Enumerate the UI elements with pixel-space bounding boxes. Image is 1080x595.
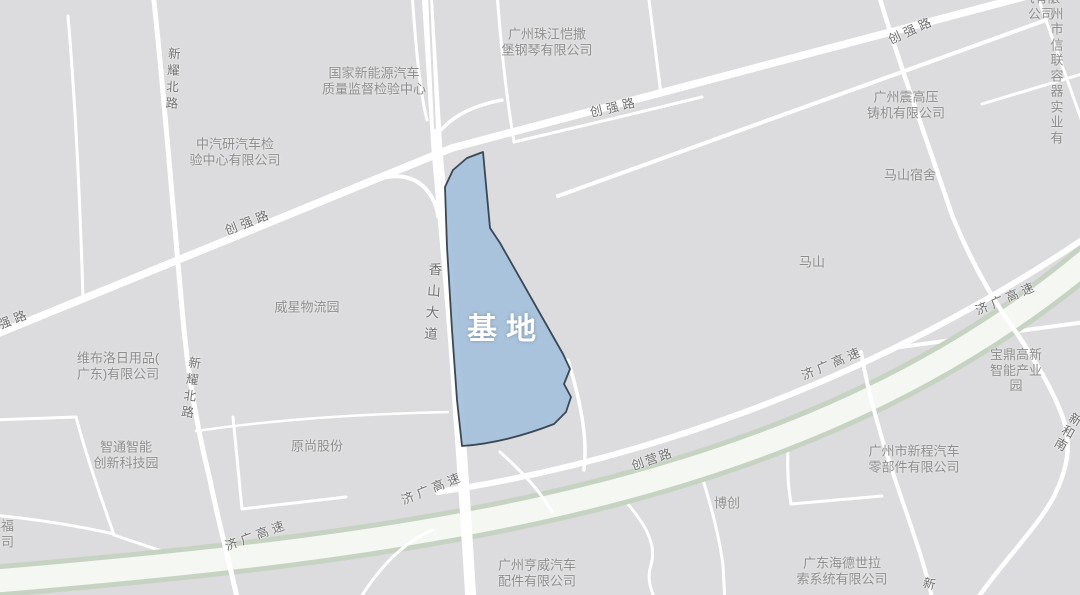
road-minor <box>558 20 1046 196</box>
road-minor <box>568 360 585 470</box>
map-canvas: 国家新能源汽车 质量监督检验中心 广州珠江恺撒 堡钢琴有限公司 中汽研汽车检 验… <box>0 0 1080 595</box>
road-xinyao <box>153 0 238 595</box>
road-minor <box>622 497 656 595</box>
site-polygon <box>445 152 571 446</box>
road-minor <box>233 417 242 509</box>
interchange-ramp <box>370 176 438 216</box>
road-minor <box>0 417 76 420</box>
road-minor <box>68 16 83 298</box>
road-minor <box>497 0 514 142</box>
road-network <box>0 0 1080 595</box>
road-minor <box>76 417 114 535</box>
interchange-ramp <box>440 100 502 131</box>
road-minor <box>791 496 882 504</box>
road-minor <box>0 515 114 534</box>
road-minor <box>701 474 725 595</box>
road-minor <box>242 497 346 509</box>
road-minor <box>648 0 661 94</box>
